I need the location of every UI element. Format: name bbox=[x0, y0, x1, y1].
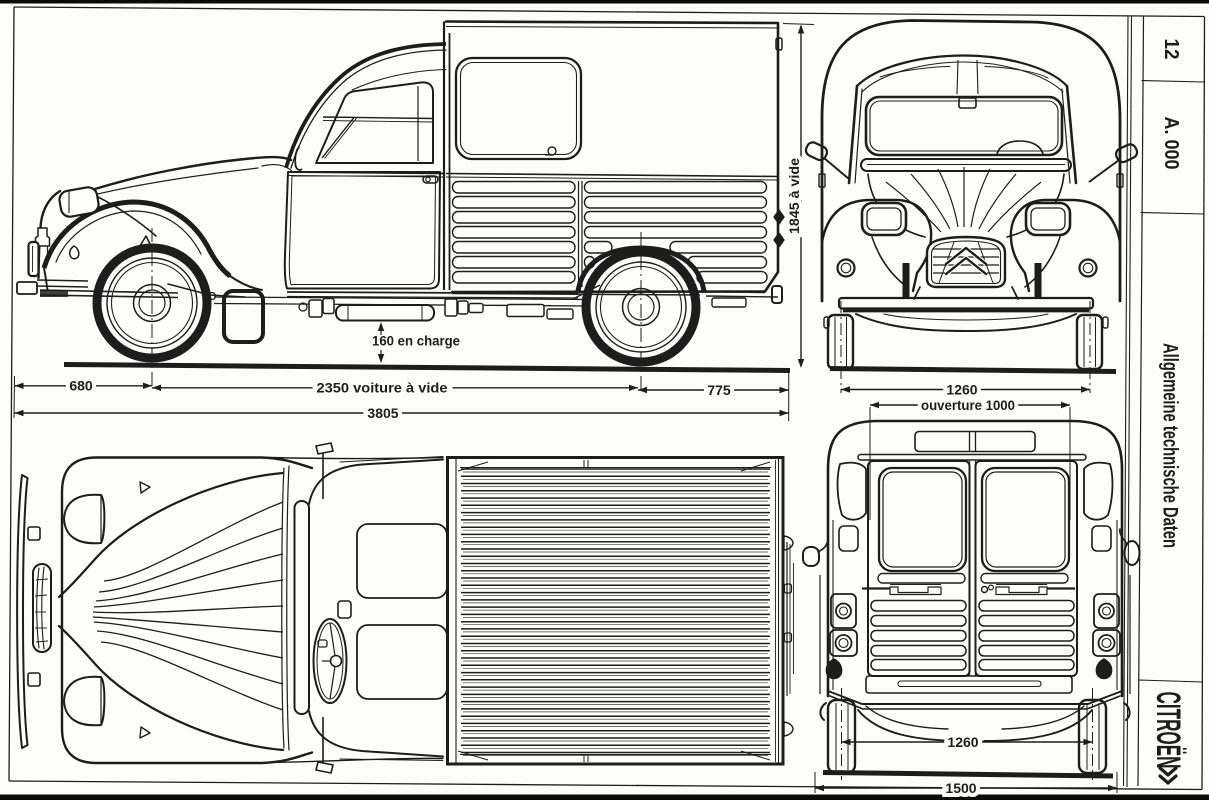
svg-text:2350 voiture à vide: 2350 voiture à vide bbox=[317, 380, 448, 396]
svg-text:3805: 3805 bbox=[367, 405, 398, 421]
svg-text:Allgemeine technische Daten: Allgemeine technische Daten bbox=[1159, 343, 1182, 548]
svg-text:1260: 1260 bbox=[946, 381, 977, 397]
svg-text:680: 680 bbox=[69, 378, 93, 394]
svg-text:160 en charge: 160 en charge bbox=[372, 333, 460, 349]
svg-text:1260: 1260 bbox=[947, 734, 978, 750]
svg-text:A. 000: A. 000 bbox=[1160, 117, 1182, 170]
svg-text:1500: 1500 bbox=[945, 780, 976, 796]
svg-text:1845 à vide: 1845 à vide bbox=[786, 158, 802, 234]
svg-text:775: 775 bbox=[707, 382, 731, 398]
svg-text:CITROËN: CITROËN bbox=[1149, 692, 1187, 769]
svg-text:12: 12 bbox=[1160, 39, 1182, 60]
svg-text:ouverture 1000: ouverture 1000 bbox=[921, 397, 1015, 413]
